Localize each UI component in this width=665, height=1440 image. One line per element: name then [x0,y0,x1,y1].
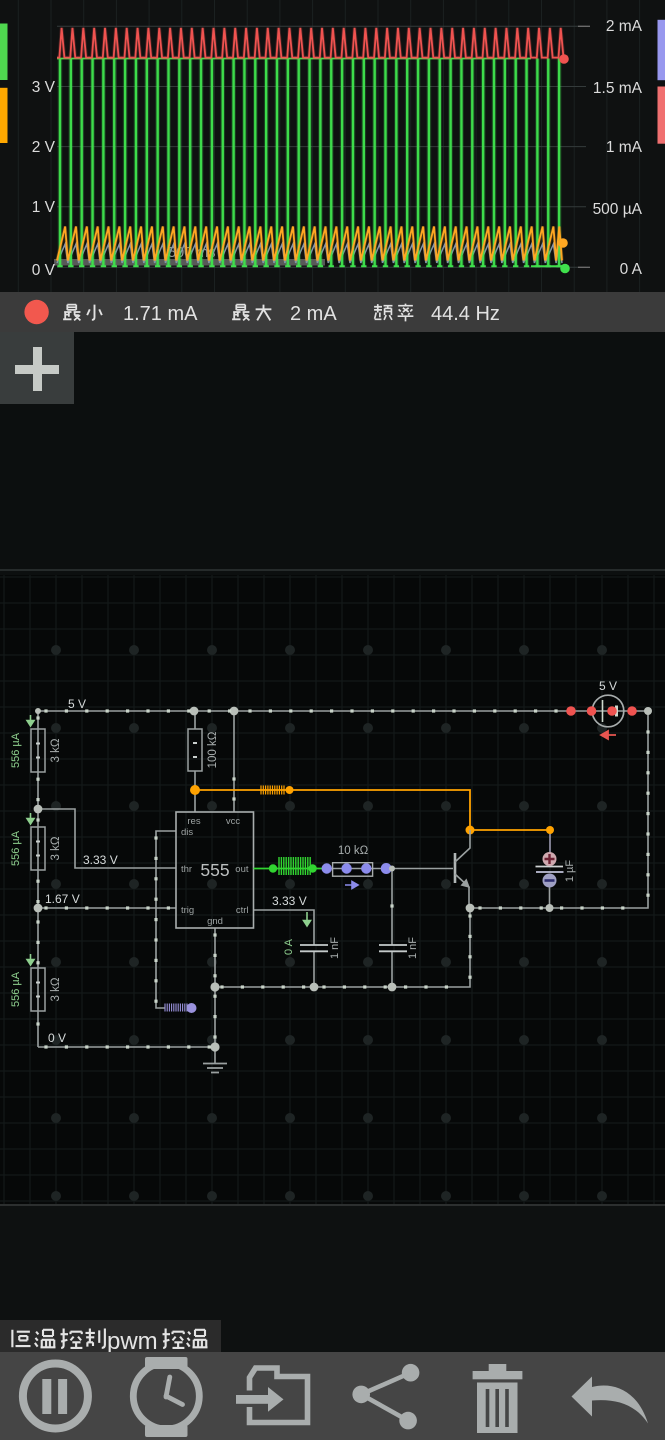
svg-text:2 mA: 2 mA [290,303,337,325]
svg-text:556 µA: 556 µA [10,830,22,866]
svg-text:out: out [235,864,249,875]
svg-text:trig: trig [181,905,194,916]
svg-text:ctrl: ctrl [236,905,249,916]
svg-text:2 mA: 2 mA [606,18,643,35]
svg-text:0 V: 0 V [48,1031,66,1045]
svg-text:3 kΩ: 3 kΩ [50,977,62,1001]
svg-text:1 nF: 1 nF [407,937,419,959]
svg-text:556 µA: 556 µA [10,732,22,768]
svg-text:1.5 mA: 1.5 mA [593,80,643,97]
svg-text:500 µA: 500 µA [593,201,643,218]
svg-text:dis: dis [181,827,193,838]
svg-text:3 kΩ: 3 kΩ [50,836,62,860]
svg-text:10 kΩ: 10 kΩ [338,845,369,857]
svg-text:555: 555 [200,860,229,880]
svg-text:0 A: 0 A [620,261,643,278]
svg-text:pwm: pwm [107,1328,158,1355]
svg-text:1 µF: 1 µF [564,860,576,883]
svg-text:0 A: 0 A [283,938,295,955]
svg-text:1.71 mA: 1.71 mA [123,303,198,325]
svg-text:res: res [187,816,200,827]
svg-text:1 nF: 1 nF [329,937,341,959]
svg-text:0 V: 0 V [32,262,56,279]
svg-text:2 V: 2 V [32,139,56,156]
svg-text:44.4 Hz: 44.4 Hz [431,303,500,325]
svg-text:5 V: 5 V [599,679,617,693]
svg-text:3 V: 3 V [32,79,56,96]
svg-text:1 V: 1 V [32,199,56,216]
svg-text:3 kΩ: 3 kΩ [50,738,62,762]
svg-text:556 µA: 556 µA [10,971,22,1007]
svg-text:thr: thr [181,864,192,875]
svg-text:gnd: gnd [207,916,223,927]
svg-text:1 mA: 1 mA [606,139,643,156]
svg-text:vcc: vcc [226,816,241,827]
svg-text:3.33 V: 3.33 V [83,853,118,867]
svg-text:100 kΩ: 100 kΩ [207,731,219,768]
svg-text:1.67 V: 1.67 V [45,892,80,906]
svg-text:5 V: 5 V [68,697,86,711]
svg-text:3.33 V: 3.33 V [272,894,307,908]
